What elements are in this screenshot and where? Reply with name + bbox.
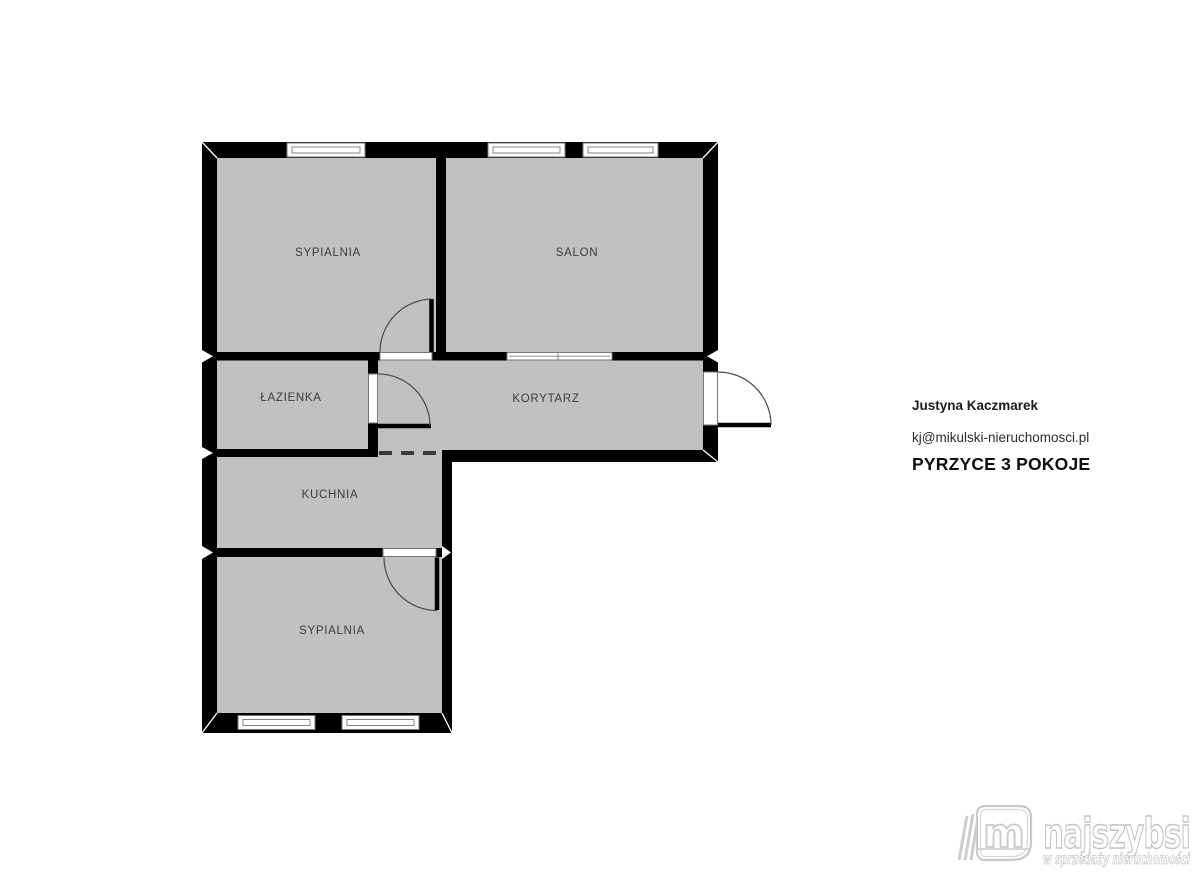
wall-segment — [217, 352, 703, 361]
window — [287, 143, 365, 157]
room-label-lazienka: ŁAZIENKA — [260, 392, 321, 404]
window — [238, 716, 315, 730]
listing-title: PYRZYCE 3 POKOJE — [912, 454, 1192, 475]
door-opening — [383, 549, 436, 557]
wall-segment — [217, 449, 378, 457]
wall-segment — [442, 450, 718, 462]
agent-block: Justyna Kaczmarek kj@mikulski-nieruchomo… — [912, 398, 1192, 475]
door-opening — [704, 372, 718, 425]
door-opening — [369, 374, 378, 423]
wall-segment — [436, 158, 446, 352]
brand-logo: m najszybsi w sprzedaży nieruchomości — [953, 802, 1193, 874]
floor-area — [208, 148, 712, 727]
agent-email: kj@mikulski-nieruchomosci.pl — [912, 430, 1192, 445]
logo-monogram: m — [983, 811, 1025, 857]
wall-segment — [202, 142, 217, 733]
room-label-salon: SALON — [556, 247, 599, 259]
wall-segment — [442, 450, 452, 733]
door-swing-arc — [718, 372, 771, 425]
door-opening — [380, 353, 432, 361]
agent-name: Justyna Kaczmarek — [912, 398, 1192, 413]
window — [488, 143, 565, 157]
room-label-korytarz: KORYTARZ — [512, 393, 579, 405]
logo-book-monogram-icon: m — [977, 806, 1031, 860]
page: SYPIALNIA SALON ŁAZIENKA KORYTARZ KUCHNI… — [0, 0, 1200, 878]
room-label-kuchnia: KUCHNIA — [302, 489, 359, 501]
window — [583, 143, 658, 157]
brand-tagline-text: w sprzedaży nieruchomości — [1043, 850, 1191, 868]
room-label-sypialnia-2: SYPIALNIA — [299, 625, 365, 637]
room-label-sypialnia-1: SYPIALNIA — [295, 247, 361, 259]
window — [342, 716, 419, 730]
